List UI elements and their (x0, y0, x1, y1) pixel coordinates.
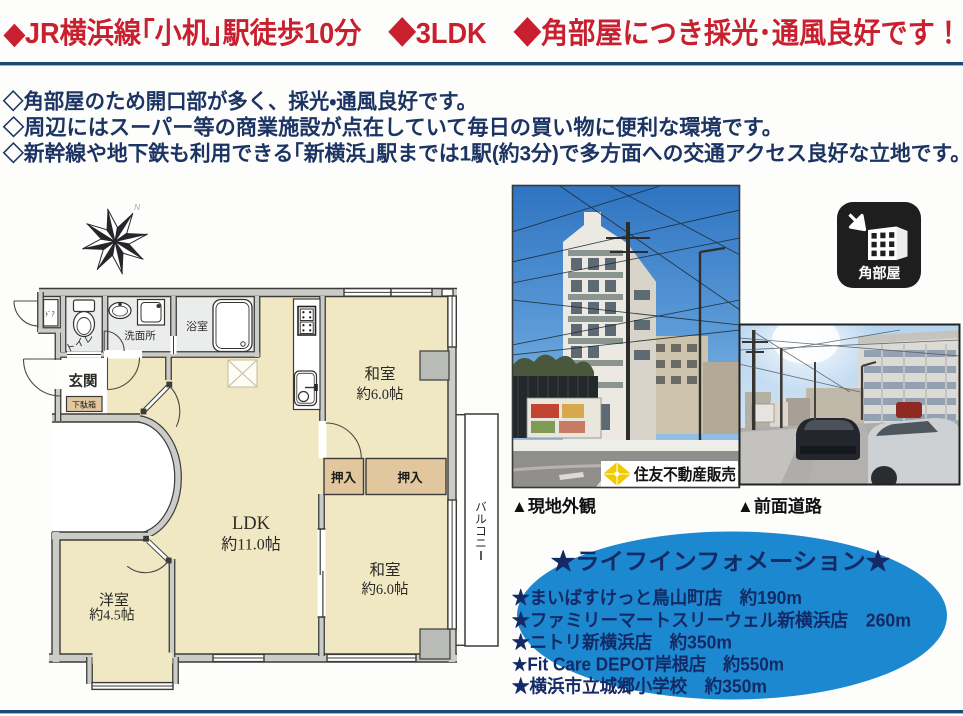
svg-text:◆JR横浜線｢小机｣駅徒歩10分 ◆3LDK ◆角部屋につき: ◆JR横浜線｢小机｣駅徒歩10分 ◆3LDK ◆角部屋につき採光･通風良好です！ (3, 16, 962, 50)
svg-text:▲前面道路: ▲前面道路 (737, 496, 823, 516)
svg-text:ル: ル (475, 514, 487, 526)
svg-text:玄関: 玄関 (69, 372, 98, 390)
svg-text:押入: 押入 (397, 470, 423, 485)
svg-text:◇周辺にはスーパー等の商業施設が点在していて毎日の買い物に便: ◇周辺にはスーパー等の商業施設が点在していて毎日の買い物に便利な環境です。 (2, 116, 783, 140)
svg-text:★ニトリ新横浜店 約350m: ★ニトリ新横浜店 約350m (512, 632, 732, 653)
svg-text:★Fit Care DEPOT岸根店 約550m: ★Fit Care DEPOT岸根店 約550m (512, 654, 784, 675)
svg-text:住友不動産販売: 住友不動産販売 (633, 465, 736, 484)
svg-text:洗面所: 洗面所 (124, 329, 156, 342)
svg-text:下駄箱: 下駄箱 (72, 400, 96, 410)
svg-text:★まいばすけっと鳥山町店 約190m: ★まいばすけっと鳥山町店 約190m (512, 587, 802, 608)
svg-text:約6.0帖: 約6.0帖 (356, 386, 403, 403)
svg-text:和室: 和室 (369, 561, 400, 579)
svg-text:バ: バ (475, 501, 487, 514)
svg-text:◇角部屋のため開口部が多く、採光・通風良好です。: ◇角部屋のため開口部が多く、採光・通風良好です。 (2, 90, 477, 114)
svg-text:N: N (134, 202, 141, 212)
svg-text:洋室: 洋室 (99, 592, 129, 609)
svg-text:押入: 押入 (331, 470, 357, 485)
svg-text:LDK: LDK (232, 514, 271, 534)
svg-text:約11.0帖: 約11.0帖 (221, 536, 280, 554)
svg-text:約4.5帖: 約4.5帖 (89, 608, 135, 624)
svg-text:★ライフインフォメーション★: ★ライフインフォメーション★ (551, 548, 890, 574)
svg-text:★横浜市立城郷小学校 約350m: ★横浜市立城郷小学校 約350m (512, 676, 767, 697)
svg-text:コ: コ (475, 526, 487, 538)
svg-text:◇新幹線や地下鉄も利用できる｢新横浜｣駅までは1駅(約3分): ◇新幹線や地下鉄も利用できる｢新横浜｣駅までは1駅(約3分)で多方面への交通アク… (2, 142, 963, 166)
svg-text:浴室: 浴室 (186, 320, 208, 333)
svg-text:ニ: ニ (475, 538, 487, 550)
svg-text:★ファミリーマートスリーウェル新横浜店 260m: ★ファミリーマートスリーウェル新横浜店 260m (512, 610, 911, 631)
svg-text:ﾄﾞｱ: ﾄﾞｱ (45, 310, 56, 318)
svg-text:角部屋: 角部屋 (858, 265, 901, 281)
svg-text:和室: 和室 (364, 365, 395, 383)
svg-text:▲現地外観: ▲現地外観 (511, 496, 596, 516)
svg-text:約6.0帖: 約6.0帖 (361, 581, 408, 598)
